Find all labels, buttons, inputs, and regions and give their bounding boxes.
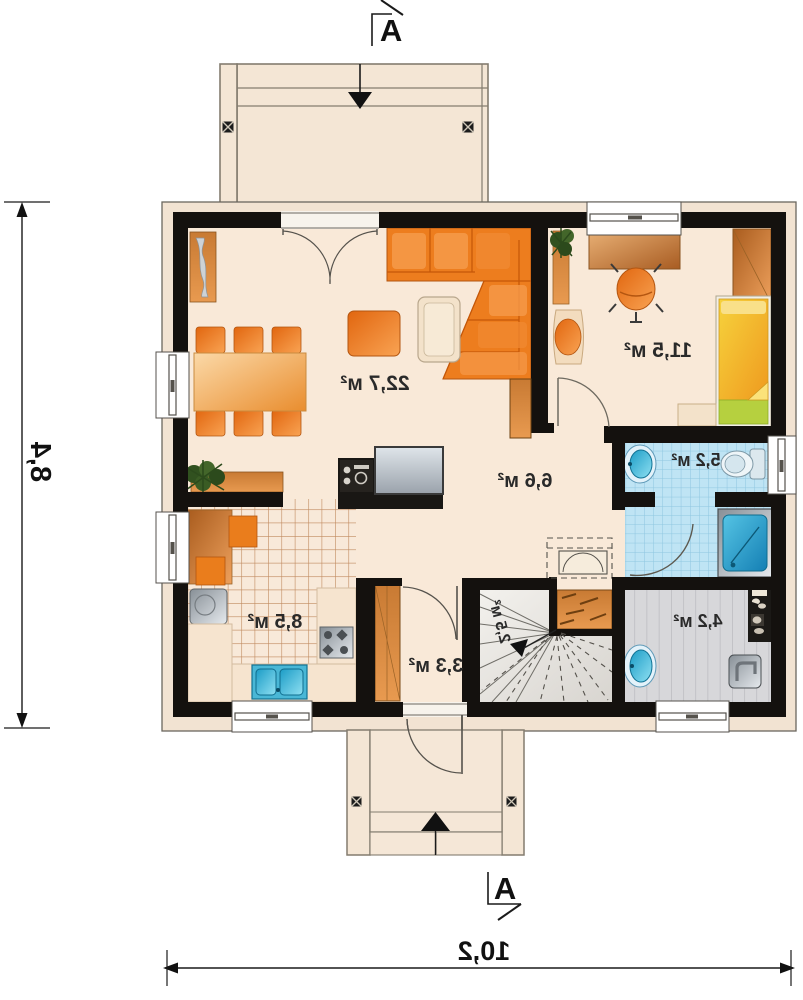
svg-text:4,2 м²: 4,2 м² bbox=[673, 611, 722, 631]
svg-text:6,6 м²: 6,6 м² bbox=[497, 470, 552, 492]
svg-text:3,3 м²: 3,3 м² bbox=[408, 655, 463, 677]
svg-text:8,4: 8,4 bbox=[24, 442, 56, 482]
svg-text:5,2 м²: 5,2 м² bbox=[671, 450, 720, 470]
svg-text:8,5 м²: 8,5 м² bbox=[247, 611, 302, 633]
svg-text:A: A bbox=[380, 13, 402, 48]
svg-text:11,5 м²: 11,5 м² bbox=[624, 339, 692, 362]
svg-text:A: A bbox=[494, 871, 516, 906]
svg-text:22,7 м²: 22,7 м² bbox=[340, 372, 409, 395]
svg-text:10,2: 10,2 bbox=[458, 936, 511, 966]
